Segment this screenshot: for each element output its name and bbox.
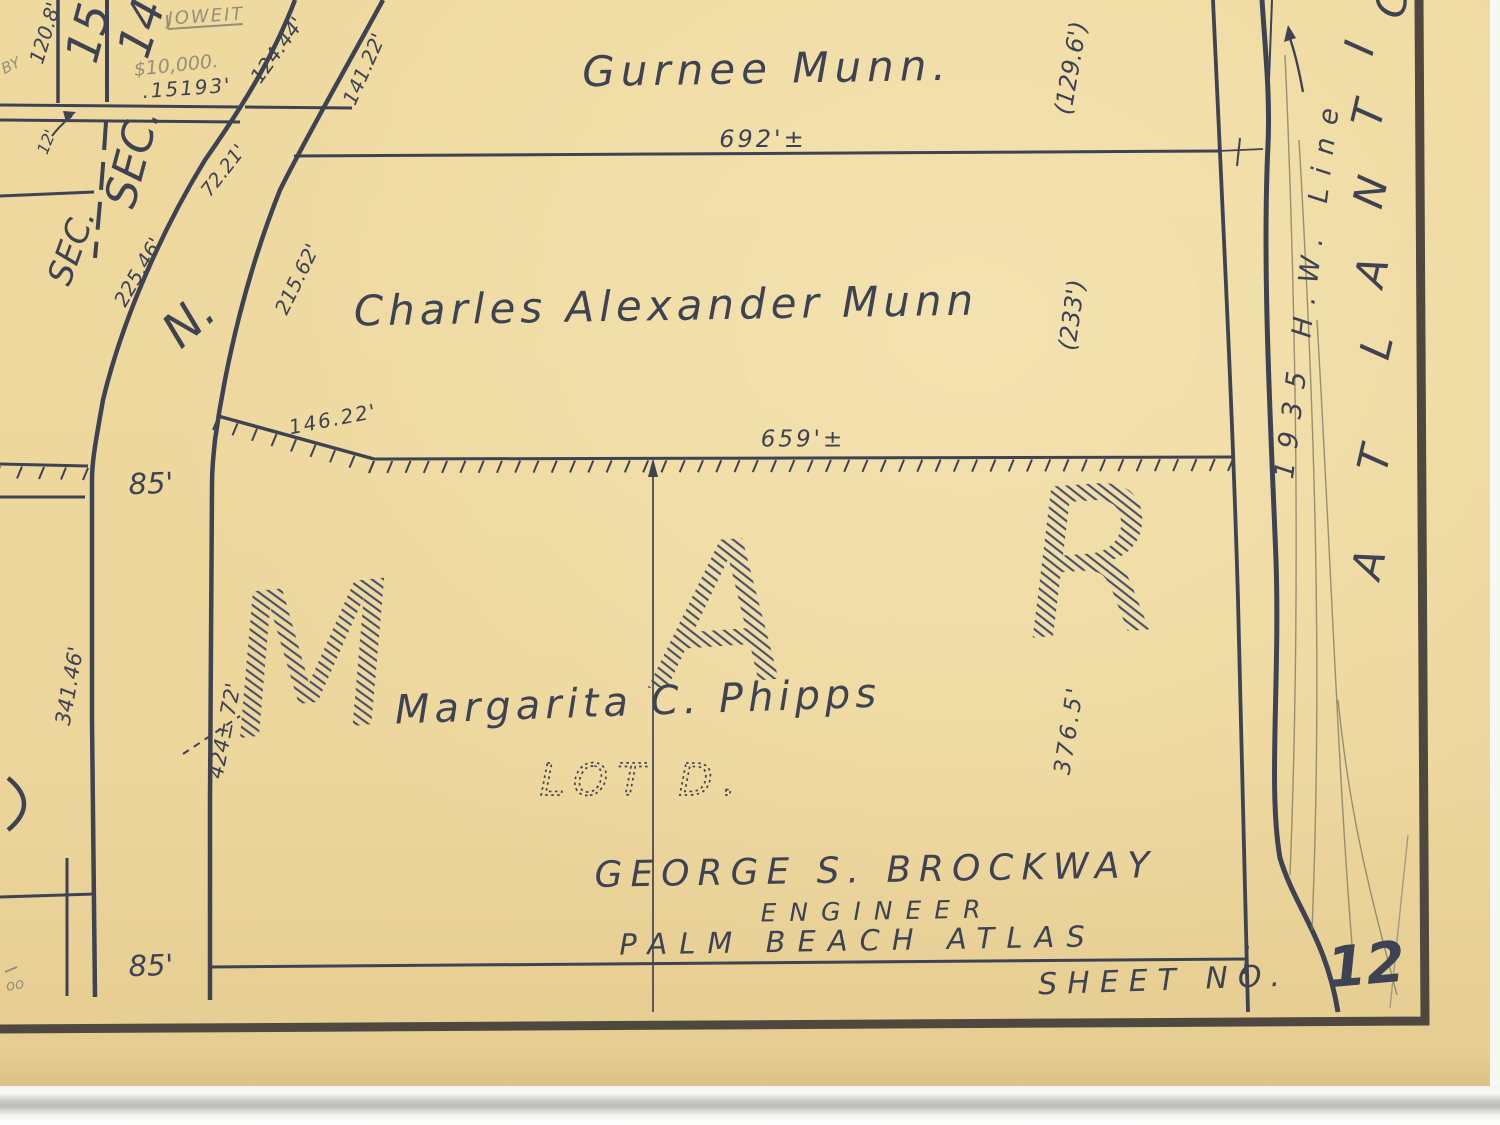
sheet-number-value: 12 (1325, 935, 1408, 998)
section-number-15: 15 (58, 0, 118, 67)
east-boundary-line (1213, 0, 1248, 1012)
lot-d-label: LOT D. (540, 755, 747, 806)
dim-659: 659'± (761, 429, 846, 452)
big-letter-r: R (1014, 439, 1173, 686)
owner-gurnee-munn: Gurnee Munn. (582, 45, 952, 93)
atlas-title: PALM BEACH ATLAS (619, 922, 1097, 959)
map-sheet-scan: M A R LOT D. 15 14 SEC. SEC. 120.8' 124.… (0, 0, 1500, 1125)
sheet-number-label: SHEET NO. (1038, 962, 1291, 1001)
big-letter-m: M (215, 538, 409, 786)
big-hatched-letters: M A R (215, 439, 1172, 785)
surveyor-name: GEORGE S. BROCKWAY (594, 848, 1158, 894)
pencil-note-oo: oo (5, 976, 26, 994)
dim-85-bottom: 85' (128, 951, 174, 982)
dim-692: 692'± (719, 127, 807, 151)
owner-charles-munn: Charles Alexander Munn (354, 280, 979, 333)
dim-15193: .15193' (142, 75, 233, 101)
dim-85-top: 85' (128, 469, 174, 500)
